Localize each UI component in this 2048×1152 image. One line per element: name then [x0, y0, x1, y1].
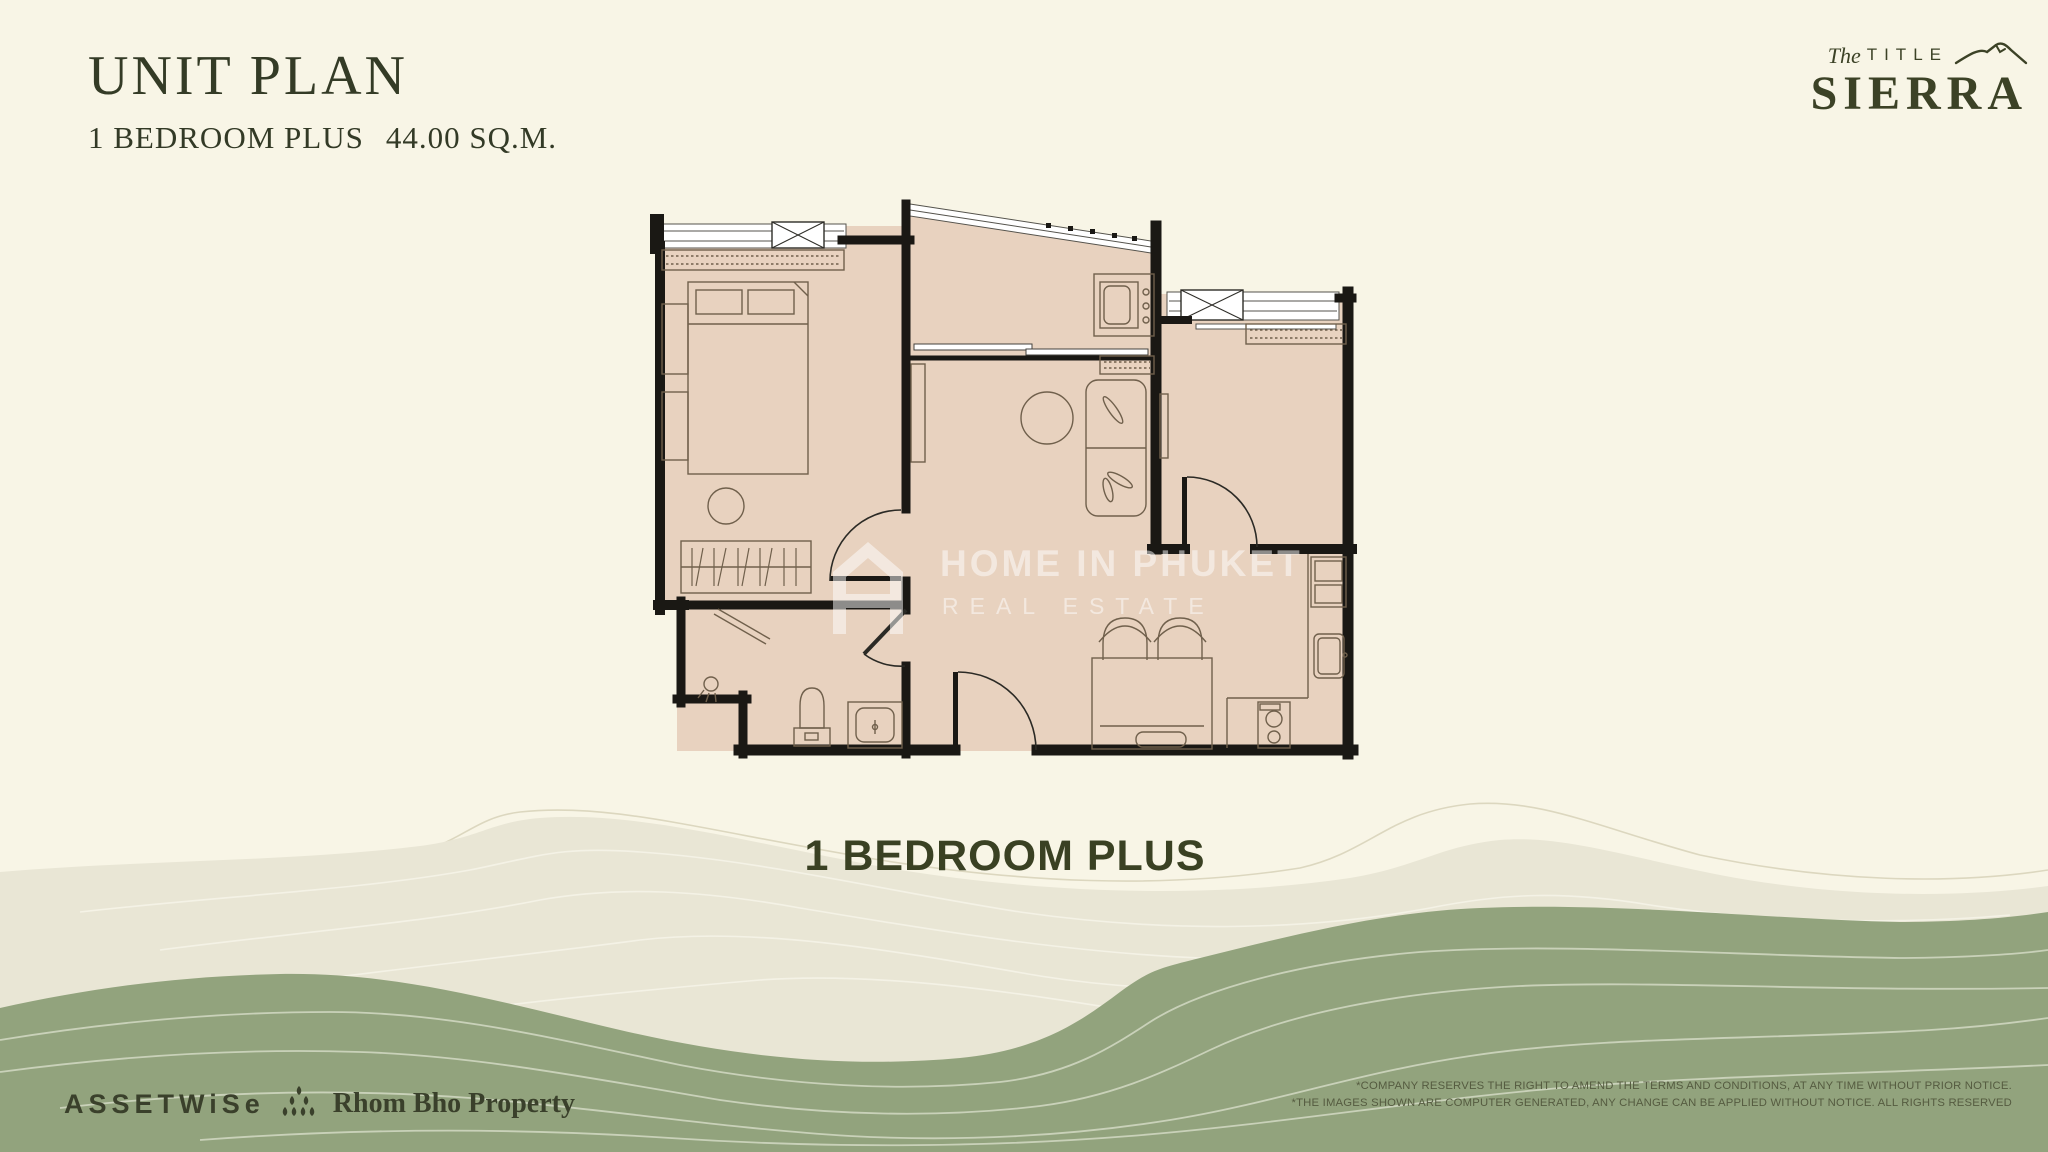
disclaimer-line2: *THE IMAGES SHOWN ARE COMPUTER GENERATED… [1291, 1095, 2012, 1112]
watermark-line2: REAL ESTATE [942, 593, 1215, 619]
leaf-cluster-icon [279, 1084, 319, 1124]
brand-pre: The [1828, 46, 1861, 66]
assetwise-logo: ASSETWiSe [64, 1089, 265, 1120]
page-title: UNIT PLAN [88, 44, 557, 108]
unit-type-label: 1 BEDROOM PLUS [88, 120, 364, 155]
brand-name: SIERRA [1728, 66, 2028, 121]
footer-logos: ASSETWiSe Rhom Bho Property [64, 1084, 575, 1124]
unit-area-label: 44.00 SQ.M. [386, 120, 557, 155]
unit-plan-page: UNIT PLAN 1 BEDROOM PLUS44.00 SQ.M. The … [0, 0, 2048, 1152]
disclaimer-line1: *COMPANY RESERVES THE RIGHT TO AMEND THE… [1291, 1078, 2012, 1095]
header: UNIT PLAN 1 BEDROOM PLUS44.00 SQ.M. [88, 44, 557, 156]
rhom-bho-logo: Rhom Bho Property [333, 1088, 575, 1120]
floor-plan-drawing: HOME IN PHUKET REAL ESTATE [648, 198, 1408, 768]
brand-logo: The TITLE SIERRA [1728, 36, 2028, 121]
plan-caption: 1 BEDROOM PLUS [620, 832, 1390, 881]
brand-word: TITLE [1867, 44, 1948, 66]
page-subtitle: 1 BEDROOM PLUS44.00 SQ.M. [88, 120, 557, 156]
disclaimer: *COMPANY RESERVES THE RIGHT TO AMEND THE… [1291, 1078, 2012, 1112]
mountain-icon [1954, 40, 2028, 66]
watermark-line1: HOME IN PHUKET [940, 543, 1303, 584]
